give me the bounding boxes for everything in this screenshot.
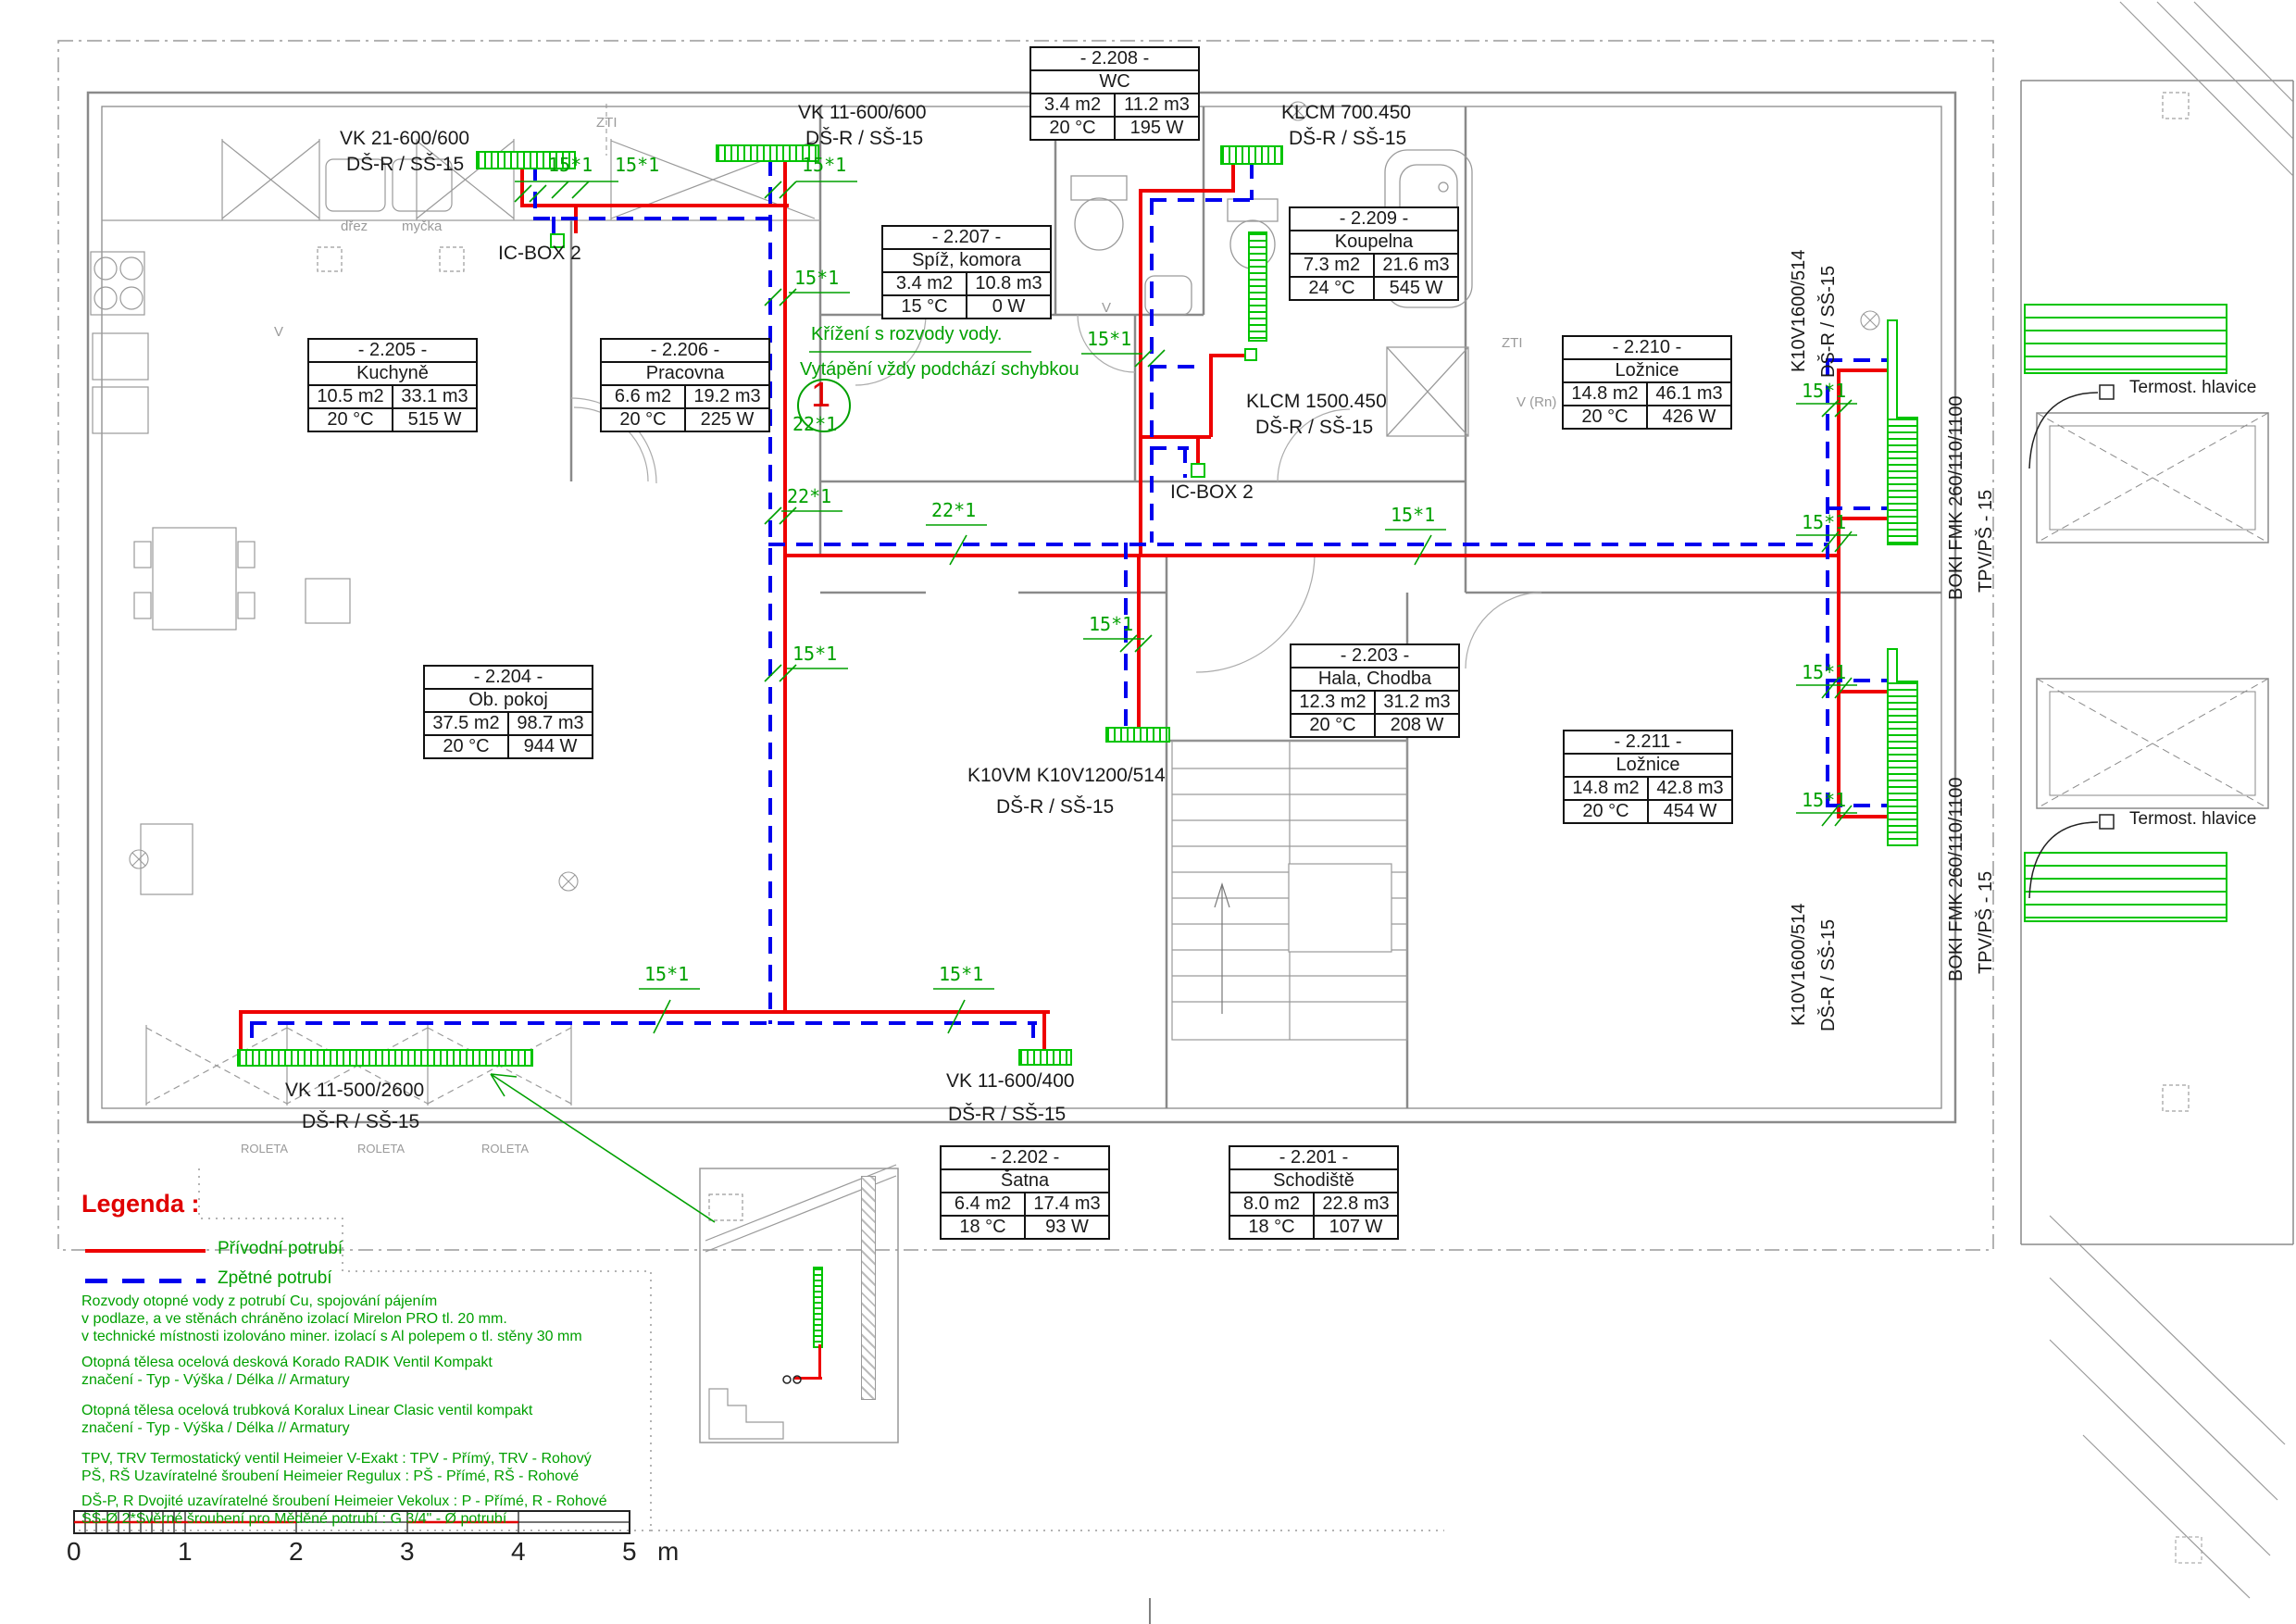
pipe-fitting-icbox-2 bbox=[1191, 463, 1205, 478]
room-table-206: - 2.206 -Pracovna6.6 m219.2 m320 °C225 W bbox=[600, 338, 770, 432]
inset-wall-hatch bbox=[861, 1176, 876, 1400]
radiator-label-k10vm: K10VM K10V1200/514 bbox=[967, 765, 1166, 787]
pipe-dimension-label: 15*1 bbox=[1802, 511, 1846, 533]
room-power: 944 W bbox=[507, 736, 592, 757]
vrn-label: V (Rn) bbox=[1516, 394, 1556, 410]
supply-pipe-segment bbox=[1837, 369, 1889, 372]
room-area: 6.6 m2 bbox=[602, 386, 684, 407]
convector-valves-boki-top: TPV/PŠ - 15 bbox=[1976, 490, 1997, 593]
return-pipe-segment bbox=[250, 1021, 1037, 1025]
radiator-k10vm-k10v1200 bbox=[1105, 727, 1170, 743]
radiator-valves-klcm700: DŠ-R / SŠ-15 bbox=[1289, 128, 1406, 150]
radiator-stub-bottom-right bbox=[1887, 648, 1898, 684]
room-volume: 98.7 m3 bbox=[507, 713, 592, 734]
supply-pipe-segment bbox=[1837, 554, 1841, 818]
return-pipe-segment bbox=[533, 217, 774, 220]
room-name: Kuchyně bbox=[309, 361, 476, 384]
convector-label-boki-bottom: BOKI FMK 260/110/1100 bbox=[1946, 778, 1967, 982]
room-name: Ob. pokoj bbox=[425, 688, 592, 711]
icbox-label-1: IC-BOX 2 bbox=[498, 243, 581, 265]
room-area: 10.5 m2 bbox=[309, 386, 392, 407]
return-pipe-segment bbox=[1124, 543, 1128, 730]
supply-pipe-segment bbox=[1209, 354, 1213, 437]
pipe-dimension-label: 15*1 bbox=[1087, 328, 1131, 350]
radiator-label-k10v-bottom: K10V1600/514 bbox=[1789, 904, 1810, 1026]
scalebar-number: 1 bbox=[178, 1537, 193, 1567]
radiator-valves-k10v-bottom: DŠ-R / SŠ-15 bbox=[1818, 919, 1840, 1031]
legend-note-line: Otopná tělesa ocelová trubková Koralux L… bbox=[81, 1402, 532, 1419]
room-table-208: - 2.208 -WC3.4 m211.2 m320 °C195 W bbox=[1029, 46, 1200, 141]
radiator-klcm-700-450 bbox=[1220, 145, 1283, 165]
room-number: - 2.207 - bbox=[883, 227, 1050, 248]
room-area: 12.3 m2 bbox=[1291, 692, 1374, 713]
return-pipe-segment bbox=[533, 164, 537, 219]
legend-supply-label: Přívodní potrubí bbox=[218, 1239, 343, 1259]
room-name: Ložnice bbox=[1564, 358, 1730, 381]
room-name: Šatna bbox=[942, 1168, 1108, 1192]
room-volume: 31.2 m3 bbox=[1374, 692, 1458, 713]
room-volume: 46.1 m3 bbox=[1646, 383, 1730, 405]
legend-title: Legenda : bbox=[81, 1190, 200, 1218]
crossing-note-line1: Křížení s rozvody vody. bbox=[811, 324, 1002, 345]
supply-pipe-segment bbox=[1139, 189, 1235, 193]
room-volume: 10.8 m3 bbox=[966, 273, 1050, 294]
room-temp: 20 °C bbox=[1565, 801, 1647, 822]
room-temp: 18 °C bbox=[942, 1217, 1024, 1238]
return-pipe-segment bbox=[1826, 506, 1889, 510]
scalebar-number: 5 bbox=[622, 1537, 637, 1567]
supply-pipe-segment bbox=[1042, 1010, 1046, 1054]
room-temp: 20 °C bbox=[1291, 715, 1374, 736]
pipe-dimension-label: 15*1 bbox=[794, 267, 839, 289]
room-number: - 2.204 - bbox=[425, 667, 592, 688]
legend-supply-sample bbox=[85, 1249, 206, 1253]
scalebar-number: 0 bbox=[67, 1537, 81, 1567]
scalebar-unit: m bbox=[657, 1537, 679, 1567]
thermostatic-head-label-top: Termost. hlavice bbox=[2129, 378, 2256, 398]
return-pipe-segment bbox=[1183, 446, 1187, 478]
room-volume: 33.1 m3 bbox=[392, 386, 476, 407]
radiator-label-vk11-500-2600: VK 11-500/2600 bbox=[285, 1080, 424, 1102]
radiator-valves-klcm1500: DŠ-R / SŠ-15 bbox=[1255, 417, 1373, 439]
room-power: 195 W bbox=[1114, 118, 1198, 139]
room-area: 14.8 m2 bbox=[1564, 383, 1646, 405]
balcony-structure bbox=[2021, 81, 2293, 1244]
zti-label-2: ZTI bbox=[1502, 335, 1523, 351]
room-name: Spíž, komora bbox=[883, 248, 1050, 271]
radiator-label-vk21: VK 21-600/600 bbox=[340, 128, 469, 150]
room-power: 107 W bbox=[1313, 1217, 1397, 1238]
supply-pipe-segment bbox=[783, 159, 787, 1011]
legend-note-piping: Rozvody otopné vody z potrubí Cu, spojov… bbox=[81, 1293, 582, 1345]
crossing-note-line2: Vytápění vždy podchází schybkou bbox=[800, 359, 1079, 381]
legend-note-line: DŠ-P, R Dvojité uzavíratelné šroubení He… bbox=[81, 1493, 607, 1510]
return-pipe-segment bbox=[768, 543, 1829, 546]
scalebar-number: 3 bbox=[400, 1537, 415, 1567]
zti-label-1: ZTI bbox=[596, 115, 618, 131]
pipe-dimension-label: 15*1 bbox=[644, 963, 689, 985]
room-power: 0 W bbox=[966, 296, 1050, 318]
inset-radiator bbox=[813, 1267, 823, 1348]
dimension-leaders bbox=[515, 181, 1857, 1033]
return-pipe-segment bbox=[1150, 198, 1154, 543]
radiator-label-klcm1500: KLCM 1500.450 bbox=[1246, 391, 1387, 413]
room-number: - 2.210 - bbox=[1564, 337, 1730, 358]
roleta-label-2: ROLETA bbox=[357, 1142, 405, 1156]
radiator-label-vk11-600-400: VK 11-600/400 bbox=[946, 1070, 1075, 1093]
return-pipe-segment bbox=[1250, 162, 1254, 200]
roleta-label-3: ROLETA bbox=[481, 1142, 529, 1156]
radiator-vk11-600-400 bbox=[1018, 1049, 1072, 1066]
radiator-k10v-top-right bbox=[1887, 417, 1918, 545]
radiator-stub-top-right bbox=[1887, 319, 1898, 420]
supply-pipe-segment bbox=[1837, 690, 1889, 693]
supply-pipe-segment bbox=[1139, 189, 1142, 554]
inset-supply-pipe bbox=[794, 1377, 822, 1380]
convector-valves-boki-bottom: TPV/PŠ - 15 bbox=[1976, 871, 1997, 974]
room-area: 14.8 m2 bbox=[1565, 778, 1647, 799]
supply-pipe-segment bbox=[520, 204, 789, 207]
return-pipe-segment bbox=[768, 159, 772, 1024]
furniture bbox=[134, 528, 350, 894]
legend-note-radik: Otopná tělesa ocelová desková Korado RAD… bbox=[81, 1354, 493, 1389]
radiator-klcm-1500-450 bbox=[1248, 231, 1267, 342]
room-area: 8.0 m2 bbox=[1230, 1193, 1313, 1215]
legend-note-line: TPV, TRV Termostatický ventil Heimeier V… bbox=[81, 1450, 592, 1468]
pipe-dimension-label: 15*1 bbox=[1802, 789, 1846, 811]
legend-note-line: v technické místnosti izolováno miner. i… bbox=[81, 1328, 582, 1345]
scalebar-number: 4 bbox=[511, 1537, 526, 1567]
room-name: Ložnice bbox=[1565, 753, 1731, 776]
room-number: - 2.202 - bbox=[942, 1147, 1108, 1168]
room-table-204: - 2.204 -Ob. pokoj37.5 m298.7 m320 °C944… bbox=[423, 665, 593, 759]
room-number: - 2.208 - bbox=[1031, 48, 1198, 69]
room-power: 515 W bbox=[392, 409, 476, 431]
pipe-dimension-label: 15*1 bbox=[802, 154, 846, 176]
supply-pipe-segment bbox=[239, 1010, 1050, 1014]
supply-pipe-segment bbox=[1231, 162, 1235, 191]
radiator-label-vk11-600-600: VK 11-600/600 bbox=[798, 102, 927, 124]
legend-note-line: značení - Typ - Výška / Délka // Armatur… bbox=[81, 1419, 532, 1437]
icbox-label-2: IC-BOX 2 bbox=[1170, 481, 1254, 504]
return-pipe-segment bbox=[1150, 198, 1254, 202]
room-power: 225 W bbox=[684, 409, 768, 431]
radiator-label-k10v-top: K10V1600/514 bbox=[1789, 250, 1810, 372]
v-mark-1: V bbox=[274, 324, 283, 340]
room-number: - 2.205 - bbox=[309, 340, 476, 361]
room-name: Hala, Chodba bbox=[1291, 667, 1458, 690]
room-power: 454 W bbox=[1647, 801, 1731, 822]
pipe-dimension-label: 15*1 bbox=[1391, 504, 1435, 526]
room-table-205: - 2.205 -Kuchyně10.5 m233.1 m320 °C515 W bbox=[307, 338, 478, 432]
room-table-211: - 2.211 -Ložnice14.8 m242.8 m320 °C454 W bbox=[1563, 730, 1733, 824]
pipe-dimension-label: 15*1 bbox=[1089, 613, 1133, 635]
pipe-dimension-label: 15*1 bbox=[615, 154, 659, 176]
floor-plan-sheet: VK 21-600/600 DŠ-R / SŠ-15 VK 11-600/600… bbox=[0, 0, 2296, 1624]
legend-note-line: PŠ, RŠ Uzavíratelné šroubení Heimeier Re… bbox=[81, 1468, 592, 1485]
room-volume: 11.2 m3 bbox=[1114, 94, 1198, 116]
scalebar-number: 2 bbox=[289, 1537, 304, 1567]
legend-note-fittings: DŠ-P, R Dvojité uzavíratelné šroubení He… bbox=[81, 1493, 607, 1528]
legend-note-line: značení - Typ - Výška / Délka // Armatur… bbox=[81, 1371, 493, 1389]
pipe-dimension-label: 22*1 bbox=[787, 485, 831, 507]
staircase bbox=[1172, 741, 1407, 1040]
room-volume: 17.4 m3 bbox=[1024, 1193, 1108, 1215]
room-temp: 20 °C bbox=[425, 736, 507, 757]
supply-pipe-segment bbox=[783, 554, 1841, 557]
room-area: 3.4 m2 bbox=[1031, 94, 1114, 116]
room-power: 426 W bbox=[1646, 406, 1730, 428]
detail-reference-number: 1 bbox=[811, 376, 830, 416]
pipe-dimension-label: 15*1 bbox=[1802, 661, 1846, 683]
radiator-valves-k10v-top: DŠ-R / SŠ-15 bbox=[1818, 266, 1840, 378]
pipe-dimension-label: 22*1 bbox=[931, 499, 976, 521]
sink-label: dřez bbox=[341, 219, 368, 234]
room-name: Schodiště bbox=[1230, 1168, 1397, 1192]
roof-corner-lines bbox=[2050, 2, 2293, 1598]
room-volume: 22.8 m3 bbox=[1313, 1193, 1397, 1215]
radiator-k10v-bottom-right bbox=[1887, 681, 1918, 846]
room-table-209: - 2.209 -Koupelna7.3 m221.6 m324 °C545 W bbox=[1289, 206, 1459, 301]
room-power: 545 W bbox=[1373, 278, 1457, 299]
room-power: 208 W bbox=[1374, 715, 1458, 736]
room-name: Koupelna bbox=[1291, 230, 1457, 253]
room-volume: 19.2 m3 bbox=[684, 386, 768, 407]
room-table-201: - 2.201 -Schodiště8.0 m222.8 m318 °C107 … bbox=[1229, 1145, 1399, 1240]
legend-note-line: Otopná tělesa ocelová desková Korado RAD… bbox=[81, 1354, 493, 1371]
room-table-207: - 2.207 -Spíž, komora3.4 m210.8 m315 °C0… bbox=[881, 225, 1052, 319]
pipe-dimension-label: 15*1 bbox=[792, 643, 837, 665]
radiator-valves-vk11-600-400: DŠ-R / SŠ-15 bbox=[948, 1104, 1066, 1126]
room-temp: 15 °C bbox=[883, 296, 966, 318]
room-area: 37.5 m2 bbox=[425, 713, 507, 734]
room-number: - 2.201 - bbox=[1230, 1147, 1397, 1168]
room-number: - 2.209 - bbox=[1291, 208, 1457, 230]
pipe-dimension-label: 22*1 bbox=[792, 413, 837, 435]
room-area: 3.4 m2 bbox=[883, 273, 966, 294]
room-temp: 20 °C bbox=[1564, 406, 1646, 428]
room-temp: 24 °C bbox=[1291, 278, 1373, 299]
supply-pipe-segment bbox=[239, 1010, 243, 1054]
supply-pipe-segment bbox=[520, 164, 524, 206]
pipe-dimension-label: 15*1 bbox=[939, 963, 983, 985]
room-name: Pracovna bbox=[602, 361, 768, 384]
legend-note-line: v podlaze, a ve stěnách chráněno izolací… bbox=[81, 1310, 582, 1328]
pipe-dimension-label: 15*1 bbox=[548, 154, 593, 176]
legend-note-koralux: Otopná tělesa ocelová trubková Koralux L… bbox=[81, 1402, 532, 1437]
supply-pipe-segment bbox=[1837, 815, 1889, 818]
room-power: 93 W bbox=[1024, 1217, 1108, 1238]
room-temp: 18 °C bbox=[1230, 1217, 1313, 1238]
radiator-valves-vk21: DŠ-R / SŠ-15 bbox=[346, 154, 464, 176]
convector-label-boki-top: BOKI FMK 260/110/1100 bbox=[1946, 396, 1967, 601]
room-name: WC bbox=[1031, 69, 1198, 93]
room-temp: 20 °C bbox=[1031, 118, 1114, 139]
dishwasher-label: myčka bbox=[402, 219, 442, 234]
room-volume: 21.6 m3 bbox=[1373, 255, 1457, 276]
radiator-valves-vk11-500-2600: DŠ-R / SŠ-15 bbox=[302, 1111, 419, 1133]
room-temp: 20 °C bbox=[309, 409, 392, 431]
legend-note-valves: TPV, TRV Termostatický ventil Heimeier V… bbox=[81, 1450, 592, 1485]
room-number: - 2.206 - bbox=[602, 340, 768, 361]
supply-pipe-segment bbox=[1137, 554, 1141, 731]
room-area: 7.3 m2 bbox=[1291, 255, 1373, 276]
convector-boki-bottom bbox=[2024, 852, 2227, 922]
room-table-210: - 2.210 -Ložnice14.8 m246.1 m320 °C426 W bbox=[1562, 335, 1732, 430]
pipe-fitting-klcm1500 bbox=[1244, 348, 1257, 361]
return-pipe-segment bbox=[1150, 365, 1200, 369]
room-volume: 42.8 m3 bbox=[1647, 778, 1731, 799]
legend-return-label: Zpětné potrubí bbox=[218, 1268, 332, 1289]
legend-note-line: SŠ-Ø 2*Svěrné šroubení pro Měděné potrub… bbox=[81, 1510, 607, 1528]
inset-supply-pipe bbox=[818, 1344, 821, 1380]
radiator-valves-k10vm: DŠ-R / SŠ-15 bbox=[996, 796, 1114, 818]
thermostatic-head-label-bottom: Termost. hlavice bbox=[2129, 809, 2256, 830]
radiator-valves-vk11-600-600: DŠ-R / SŠ-15 bbox=[805, 128, 923, 150]
convector-boki-top bbox=[2024, 304, 2227, 374]
pipe-dimension-label: 15*1 bbox=[1802, 380, 1846, 402]
radiator-vk11-500-2600 bbox=[237, 1049, 533, 1067]
room-area: 6.4 m2 bbox=[942, 1193, 1024, 1215]
v-mark-2: V bbox=[1102, 300, 1111, 316]
room-table-203: - 2.203 -Hala, Chodba12.3 m231.2 m320 °C… bbox=[1290, 643, 1460, 738]
legend-note-line: Rozvody otopné vody z potrubí Cu, spojov… bbox=[81, 1293, 582, 1310]
room-table-202: - 2.202 -Šatna6.4 m217.4 m318 °C93 W bbox=[940, 1145, 1110, 1240]
room-number: - 2.211 - bbox=[1565, 731, 1731, 753]
radiator-label-klcm700: KLCM 700.450 bbox=[1281, 102, 1411, 124]
room-temp: 20 °C bbox=[602, 409, 684, 431]
roleta-label-1: ROLETA bbox=[241, 1142, 288, 1156]
room-number: - 2.203 - bbox=[1291, 645, 1458, 667]
legend-return-sample bbox=[85, 1279, 206, 1283]
